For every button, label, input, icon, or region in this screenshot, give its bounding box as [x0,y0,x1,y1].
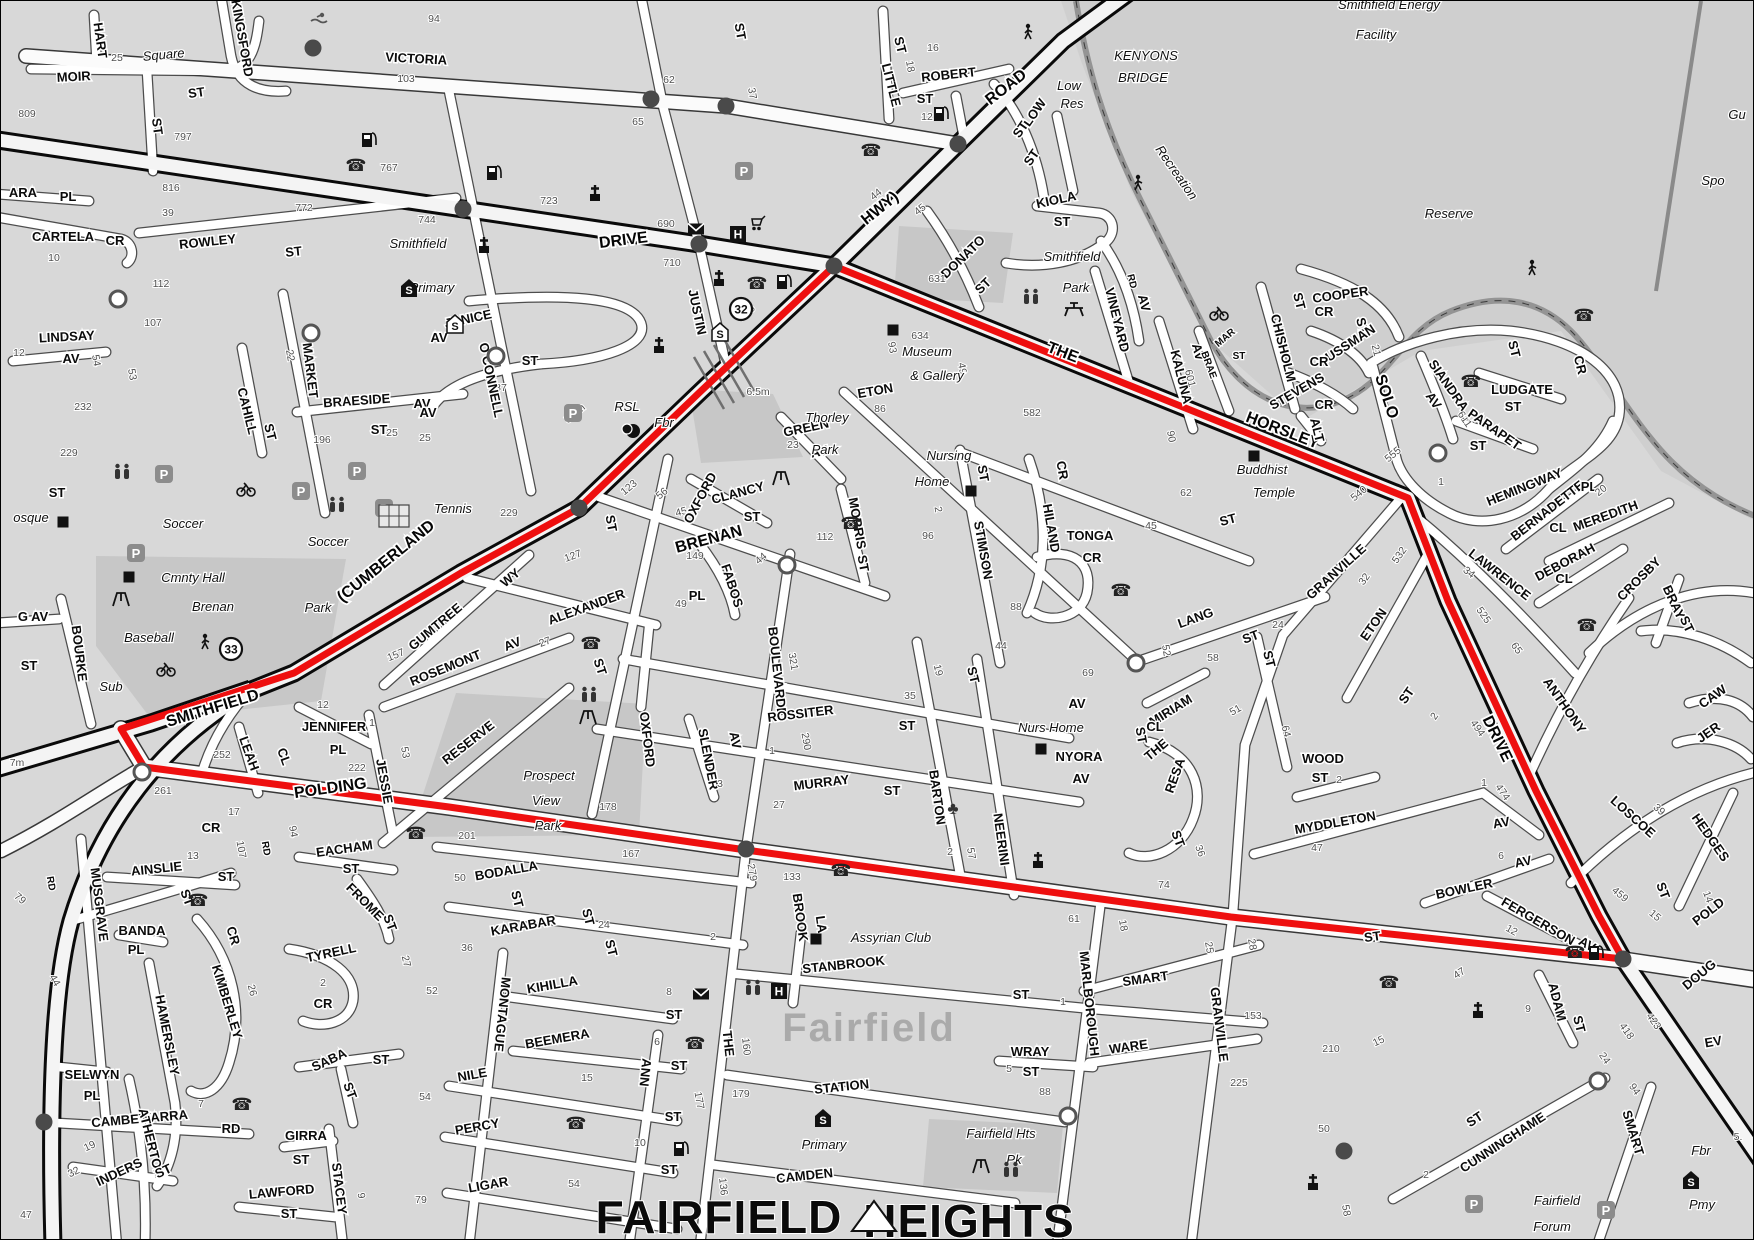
lot-number: 54 [568,1178,580,1190]
street-label: CL [1549,520,1566,535]
street-label: CR [1310,354,1329,369]
street-label: ST [1505,399,1522,414]
lot-number: 45 [1145,520,1157,532]
street-label: LA [813,915,830,935]
poi-label: Primary [802,1137,848,1152]
roundabout-icon [1060,1108,1076,1124]
phone-icon: ☎ [187,891,208,910]
building-icon [1036,744,1047,755]
lot-number: 631 [928,273,946,285]
street-label: ST [744,509,761,524]
lot-number: 2 [1423,1169,1429,1181]
building-icon [966,486,977,497]
signal-icon [643,91,660,108]
roundabout-icon [1128,655,1144,671]
poi-label: Thorley [805,410,850,425]
phone-icon: ☎ [1564,943,1585,962]
street-label: WOOD [1302,751,1344,766]
lot-number: 133 [783,871,801,883]
lot-number: 57 [964,847,978,861]
street-label: ST [187,84,206,101]
street-label: ST [855,554,873,573]
svg-text:☎: ☎ [860,141,881,160]
mail-icon [693,989,709,1000]
poi-label: Pmy [1689,1197,1717,1212]
parking-icon: P [348,462,366,480]
hospital-icon: H [730,226,746,242]
lot-number: 39 [162,207,174,219]
poi-label: Baseball [124,630,175,645]
phone-icon: ☎ [345,156,366,175]
phone-icon: ☎ [840,514,861,533]
street-label: ST [661,1162,678,1177]
lot-number: 2 [947,846,953,858]
lot-number: 112 [153,278,170,290]
street-label: CR [106,233,125,248]
lot-number: 13 [187,850,199,862]
poi-label: Facility [1356,27,1398,42]
signal-icon [826,258,843,275]
lot-number: 15 [581,1072,593,1084]
poi-label: Low [1057,78,1082,93]
lot-number: 54 [89,354,103,368]
signal-icon [305,40,322,57]
street-label: LINDSAY [38,328,95,346]
svg-text:☎: ☎ [1564,943,1585,962]
poi-label: Soccer [308,534,349,549]
lot-number: 3 [717,778,723,790]
svg-text:☎: ☎ [1460,372,1481,391]
lot-number: 582 [1023,407,1041,419]
parking-icon: P [735,162,753,180]
phone-icon: ☎ [1573,306,1594,325]
map-canvas[interactable]: MOIRSTHART25SquareKINGSFORDVICTORIA10394… [1,1,1754,1240]
phone-icon: ☎ [830,861,851,880]
svg-text:☎: ☎ [580,634,601,653]
poi-label: Spo [1701,173,1724,188]
parking-icon: P [155,465,173,483]
building-icon [58,517,69,528]
poi-label: Park [535,818,563,833]
street-label: MOIR [56,68,91,85]
street-label: ST [1133,726,1151,745]
suburb-label: FAIRFIELD [596,1191,843,1240]
svg-text:☎: ☎ [684,1034,705,1053]
lot-number: 8 [666,986,672,998]
lot-number: 58 [1207,652,1219,664]
lot-number: 62 [1180,487,1192,499]
street-label: AV [62,351,79,366]
street-label: AV [430,330,447,345]
street-label: CR [1315,304,1334,319]
phone-icon: ☎ [746,274,767,293]
svg-text:P: P [160,467,169,482]
lot-number: 49 [675,598,687,610]
lot-number: 52 [1159,644,1173,658]
poi-label: Smithfield Energy [1338,1,1441,12]
phone-icon: ☎ [1576,616,1597,635]
lot-number: 50 [1318,1123,1330,1135]
svg-text:☎: ☎ [187,891,208,910]
lot-number: 86 [874,403,886,415]
svg-text:☎: ☎ [565,1114,586,1133]
street-label: ST [1363,928,1382,945]
phone-icon: ☎ [1460,372,1481,391]
street-label: ST [1470,438,1487,453]
street-label: WRAY [1011,1044,1050,1059]
phone-icon: ☎ [405,824,426,843]
lot-number: 50 [454,872,466,884]
street-label: RD [222,1121,241,1136]
roundabout-icon [1430,445,1446,461]
street-label: ST [1054,214,1071,229]
lot-number: 772 [295,202,313,214]
lot-number: 10 [634,1137,646,1149]
street-label: JENNIFER [302,719,367,734]
lot-number: 210 [1322,1043,1340,1055]
lot-number: 7m [10,757,25,769]
suburb-label: HEIGHTS [863,1195,1074,1240]
svg-text:☎: ☎ [1110,581,1131,600]
signal-icon [36,1114,53,1131]
street-label: PL [84,1088,101,1103]
svg-text:P: P [1470,1197,1479,1212]
map[interactable]: MOIRSTHART25SquareKINGSFORDVICTORIA10394… [0,0,1754,1240]
phone-icon: ☎ [565,1114,586,1133]
lot-number: 1 [369,717,375,729]
street-label: ST [917,91,934,106]
svg-text:☎: ☎ [1573,306,1594,325]
lot-number: 96 [922,530,934,542]
poi-label: Nurs Home [1018,720,1084,735]
lot-number: 44 [995,640,1007,652]
parking-icon: P [292,482,310,500]
svg-text:P: P [132,546,141,561]
lot-number: 25 [386,427,398,439]
building-icon [811,934,822,945]
poi-label: Soccer [163,516,204,531]
lot-number: 25 [1202,941,1216,955]
svg-text:P: P [569,406,578,421]
street-label: ANN [637,1058,655,1088]
street-label: CR [1083,550,1102,565]
phone-icon: ☎ [684,1034,705,1053]
street-label: AV [419,405,436,420]
svg-text:S: S [1687,1177,1694,1189]
svg-text:☎: ☎ [840,514,861,533]
svg-text:P: P [740,164,749,179]
building-icon [888,325,899,336]
lot-number: 79 [415,1194,427,1206]
street-label: EV [1703,1033,1723,1051]
poi-label: Fairfield Hts [966,1126,1036,1141]
poi-label: Smithfield [1043,249,1101,264]
lot-number: 112 [817,531,834,543]
lot-number: 153 [1244,1010,1262,1022]
street-label: NYORA [1056,749,1104,764]
poi-label: Assyrian Club [850,930,931,945]
street-label: ST [284,243,302,260]
street-label: ST [1312,770,1329,785]
street-label: ST [603,514,621,533]
street-label: ST [21,658,38,673]
svg-text:S: S [819,1115,826,1127]
poi-label: Temple [1253,485,1295,500]
lot-number: 229 [60,447,78,459]
hospital-icon: H [771,983,787,999]
poi-label: Home [915,474,950,489]
lot-number: 12 [921,111,933,123]
street-label: ST [665,1109,682,1124]
clover-icon: ♣ [947,799,958,818]
street-label: CR [314,996,333,1011]
lot-number: 47 [1311,842,1323,854]
street-label: CARTELA [32,229,95,244]
svg-text:33: 33 [224,643,238,657]
mail-icon [688,224,704,235]
poi-label: Reserve [1425,206,1473,221]
lot-number: 196 [313,434,331,446]
lot-number: 167 [622,848,640,860]
street-label: THE [720,1030,738,1058]
svg-text:☎: ☎ [1378,973,1399,992]
street-label: ST [884,783,901,798]
poi-label: Fairfield [1534,1193,1581,1208]
route-33-icon: 33 [220,638,242,660]
lot-number: 1 [769,745,775,757]
lot-number: 93 [885,341,899,355]
lot-number: 35 [904,690,916,702]
lot-number: 16 [927,42,939,54]
street-label: ST [149,117,166,136]
lot-number: 54 [419,1091,431,1103]
svg-text:☎: ☎ [231,1095,252,1114]
street-label: ST [671,1058,688,1073]
lot-number: 12 [13,347,25,359]
street-label: AV [1491,814,1511,832]
lot-number: 12 [317,699,329,711]
lot-number: 634 [911,330,929,342]
svg-text:♣: ♣ [947,799,958,818]
poi-label: Cmnty Hall [161,570,226,585]
street-label: ST [522,353,539,368]
svg-text:P: P [353,464,362,479]
roundabout-icon [110,291,126,307]
lot-number: 149 [686,550,704,562]
parking-icon: P [564,404,582,422]
tennis-court-icon [379,505,409,527]
lot-number: 103 [397,73,415,85]
street-label: ST [1233,351,1246,362]
lot-number: 22 [283,349,297,363]
street-label: ST [293,1152,310,1167]
lot-number: 2 [710,931,716,943]
svg-text:☎: ☎ [345,156,366,175]
lot-number: 690 [657,218,675,230]
lot-number: 94 [286,825,300,839]
signal-icon [718,98,735,115]
phone-icon: ☎ [1110,581,1131,600]
lot-number: 61 [1068,913,1080,925]
poi-label: Smithfield [389,236,447,251]
street-label: ST [373,1052,390,1067]
lot-number: 252 [213,749,231,761]
route-32-icon: 32 [730,298,752,320]
parking-icon: P [1465,1195,1483,1213]
building-icon [1249,451,1260,462]
street-label: PL [330,742,347,757]
phone-icon: ☎ [231,1095,252,1114]
poi-label: RSL [614,399,639,414]
street-label: PL [60,189,77,204]
lot-number: 7 [198,1098,204,1110]
lot-number: 6 [1498,850,1504,862]
lot-number: 6.5m [746,386,770,398]
lot-number: 65 [632,116,644,128]
phone-icon: ☎ [580,634,601,653]
lot-number: 232 [74,401,92,413]
poi-label: BRIDGE [1118,70,1168,85]
parking-icon: P [1597,1201,1615,1219]
svg-text:P: P [1602,1203,1611,1218]
lot-number: 52 [426,985,438,997]
poi-label: Res [1060,96,1084,111]
lot-number: 5. [1734,1131,1743,1143]
roundabout-icon [488,348,504,364]
street-label: ST [1013,987,1030,1002]
lot-number: 36 [461,942,473,954]
poi-label: Forum [1533,1219,1571,1234]
poi-label: Buddhist [1237,462,1289,477]
street-label: ST [49,485,66,500]
street-label: PL [128,942,145,957]
lot-number: 28 [1245,938,1259,952]
lot-number: 1 [1060,996,1066,1008]
street-label: CL [1555,571,1572,586]
lot-number: 710 [663,257,681,269]
street-label: ST [975,464,993,483]
lot-number: 94 [428,13,440,25]
poi-label: Nursing [927,448,973,463]
poi-label: Park [1063,280,1091,295]
street-label: AV [1072,771,1089,786]
lot-number: 2 [320,977,326,989]
signal-icon [571,500,588,517]
roundabout-icon [1590,1073,1606,1089]
poi-label: & Gallery [910,368,965,383]
street-label: ST [281,1206,298,1221]
lot-number: 160 [739,1037,753,1056]
lot-number: 225 [1230,1077,1248,1089]
lot-number: 178 [599,801,617,813]
lot-number: 1 [1481,777,1487,789]
street-label: G AV [18,609,49,624]
poi-label: Fbr [654,415,674,430]
lot-number: 767 [380,162,398,174]
lot-number: 723 [540,195,558,207]
poi-label: Prospect [523,768,576,783]
street-label: ST [371,422,388,437]
svg-text:S: S [451,321,458,333]
signal-icon [1336,1143,1353,1160]
lot-number: 53 [398,746,412,760]
street-label: BANDA [119,923,167,938]
lot-number: 9 [1525,1003,1531,1015]
lot-number: 797 [174,131,192,143]
lot-number: 2 [1336,774,1342,786]
lot-number: 47 [20,1209,32,1221]
lot-number: 18 [1116,919,1130,933]
lot-number: 88 [1010,601,1022,613]
roundabout-icon [134,764,150,780]
poi-label: KENYONS [1114,48,1178,63]
lot-number: 809 [18,108,36,120]
lot-number: 18 [903,60,917,74]
building-icon [124,572,135,583]
street-label: ST [343,861,360,876]
street-label: AV [1068,696,1085,711]
svg-text:☎: ☎ [746,274,767,293]
poi-label: Park [812,442,840,457]
poi-label: Brenan [192,599,234,614]
lot-number: 10 [48,252,60,264]
signal-icon [455,201,472,218]
poi-label: Sub [99,679,122,694]
svg-text:S: S [716,329,723,341]
lot-number: 24 [1272,619,1284,631]
poi-label: Tennis [434,501,472,516]
lot-number: 222 [348,762,366,774]
lot-number: 24 [598,919,610,931]
svg-text:H: H [775,985,784,999]
svg-text:☎: ☎ [830,861,851,880]
signal-icon [738,841,755,858]
lot-number: 62 [663,74,675,86]
lot-number: 17 [228,806,240,818]
poi-label: View [532,793,562,808]
street-label: SELWYN [65,1067,120,1082]
street-label: ST [899,718,916,733]
street-label: ST [666,1007,683,1022]
suburb-label: Fairfield [782,1006,956,1050]
poi-label: Park [305,600,333,615]
lot-number: 69 [1082,667,1094,679]
street-label: TONGA [1067,528,1114,543]
signal-icon [1615,951,1632,968]
street-label: ST [732,22,750,41]
parking-icon: P [127,544,145,562]
svg-text:☎: ☎ [1576,616,1597,635]
svg-text:S: S [405,285,412,297]
lot-number: 107 [144,317,162,329]
svg-text:H: H [734,228,743,242]
signal-icon [691,236,708,253]
lot-number: 1 [1438,476,1444,488]
street-label: CR [202,820,221,835]
poi-label: Museum [902,344,952,359]
poi-label: Fbr [1691,1143,1711,1158]
signal-icon [950,136,967,153]
lot-number: 229 [500,507,518,519]
phone-icon: ☎ [860,141,881,160]
lot-number: 88 [1039,1086,1051,1098]
lot-number: 201 [458,830,476,842]
lot-number: 58 [1339,1204,1353,1218]
poi-label: Gu [1728,107,1745,122]
street-label: LUDGATE [1491,382,1553,397]
street-label: ST [1023,1064,1040,1079]
street-label: PL [689,588,706,603]
